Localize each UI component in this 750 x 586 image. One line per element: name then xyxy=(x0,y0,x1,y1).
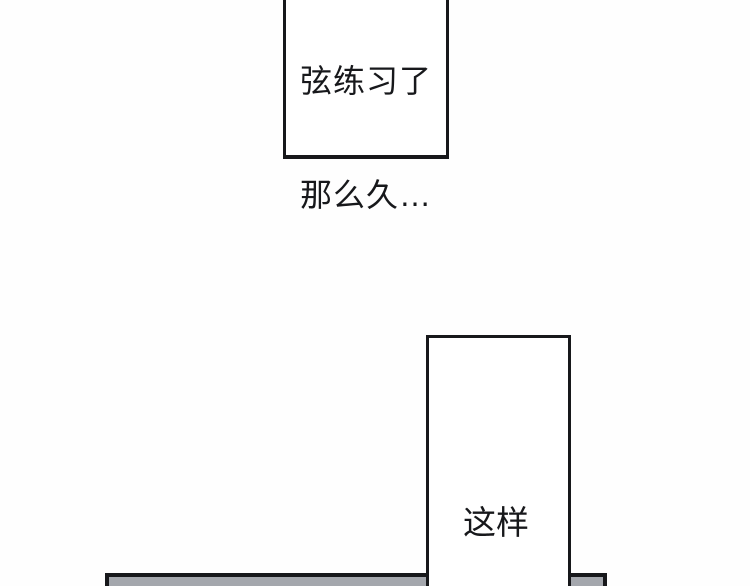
speech-bubble-top-text: 弦练习了 那么久… xyxy=(286,0,446,290)
speech-bubble-bottom: 这样 的话, xyxy=(426,335,571,586)
speech-bubble-top: 弦练习了 那么久… xyxy=(283,0,449,159)
speech-line: 这样 xyxy=(463,503,538,543)
speech-line: 弦练习了 xyxy=(286,62,446,100)
comic-panel: 弦练习了 那么久… 这样 的话, xyxy=(0,0,750,586)
speech-bubble-bottom-text: 这样 的话, xyxy=(463,423,538,586)
speech-line: 那么久… xyxy=(286,176,446,214)
